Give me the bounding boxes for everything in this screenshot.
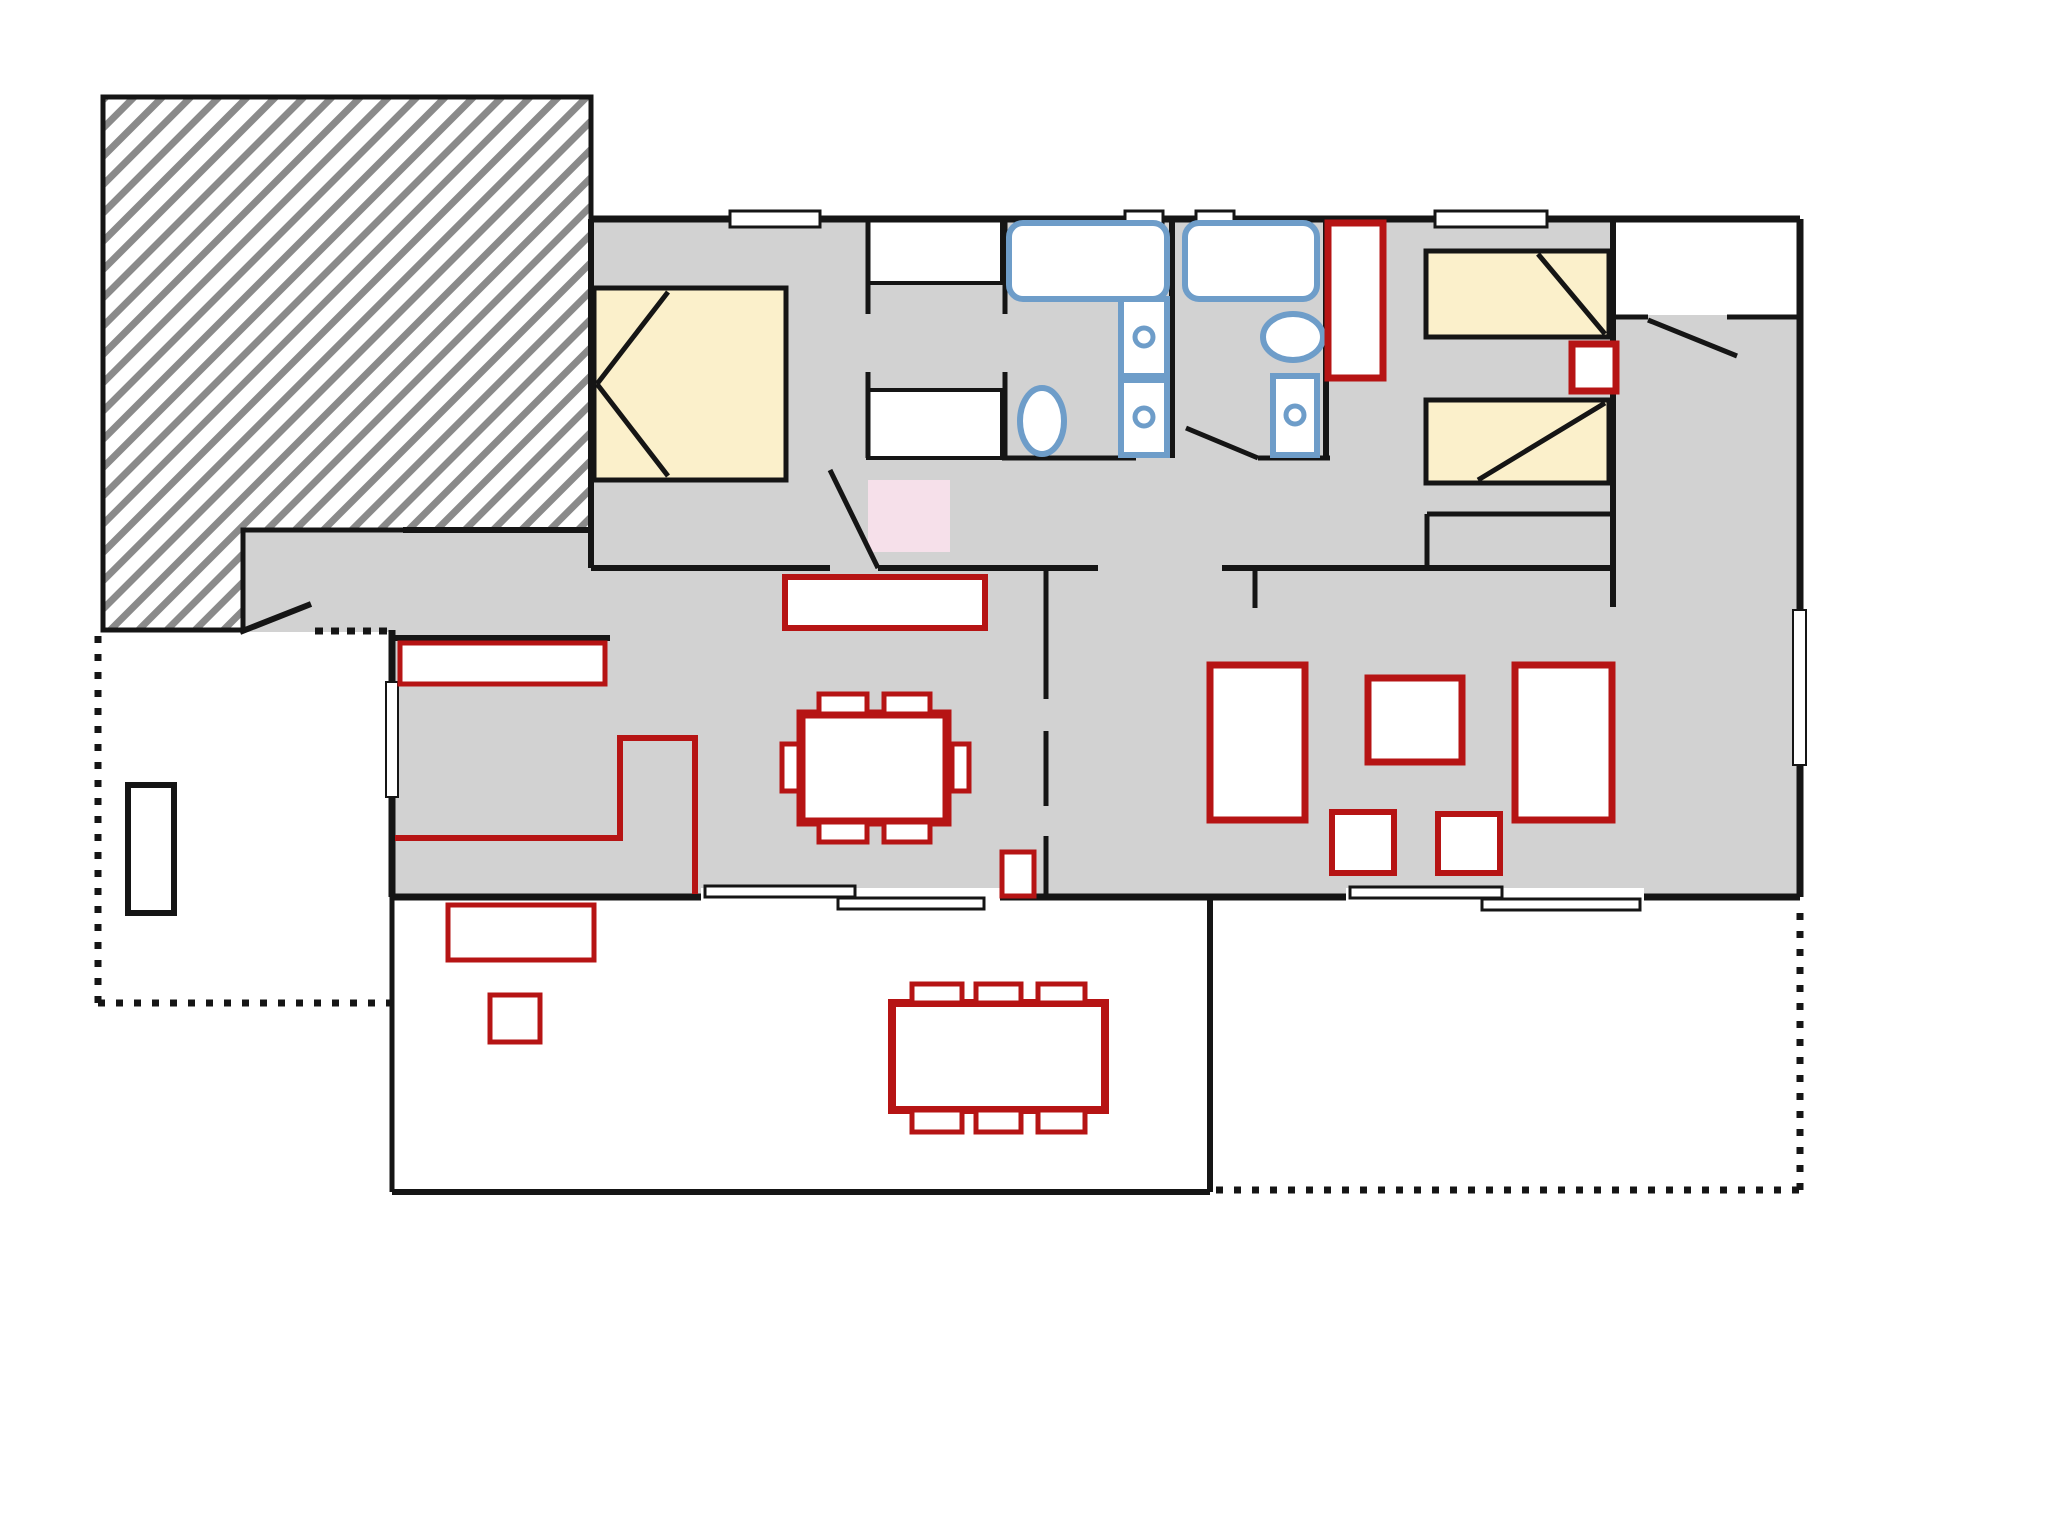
sideboard-kitchen [400,643,605,684]
terrace-dining-table [892,1003,1105,1110]
terrace-chair-top-1 [912,984,962,1003]
floor-entry-vestibule [237,530,591,632]
window-bedroom1 [730,211,820,227]
sliding-door-living-panel-2 [1482,899,1640,910]
cabinet-bath2-red [1328,223,1383,378]
sofa-right [1515,665,1612,820]
nightstand-bedroom2-red [1572,344,1616,391]
sliding-door-living-panel-1 [1350,887,1502,898]
terrace-chair-top-3 [1038,984,1085,1003]
bathtub-2 [1185,223,1317,299]
vanity-1-upper-drain [1135,328,1153,346]
dining-chair-bottom-2 [884,822,930,842]
sofa-left [1210,665,1305,820]
vanity-1-lower-drain [1135,408,1153,426]
chair-by-slider [1002,852,1034,896]
closet-niche-2 [868,390,1002,458]
dining-chair-left [782,744,799,791]
dining-chair-top-1 [819,694,867,714]
window-dining-west [386,682,398,797]
coffee-table [1368,678,1462,762]
closet-top-right [1616,222,1797,315]
bed-double-bedroom1 [594,288,786,480]
terrace-small-table [490,995,540,1042]
terrace-left-planter [128,785,174,913]
sliding-door-dining-panel-2 [838,898,984,909]
terrace-chair-top-2 [976,984,1021,1003]
bed-single-b-bedroom2 [1426,400,1609,483]
terrace-chair-bottom-3 [1038,1110,1085,1132]
shower-2-drain [1286,406,1304,424]
floor-plan-drawing [0,0,2048,1536]
stool-2 [1438,814,1500,873]
bathtub-1 [1009,223,1167,299]
toilet-1 [1020,388,1064,454]
floor-plan-page [0,0,2048,1536]
stool-1 [1332,812,1394,873]
plan-layer [98,97,1806,1192]
bed-single-a-bedroom2 [1426,251,1609,337]
sideboard-dining-north [785,577,985,628]
terrace-chair-bottom-1 [912,1110,962,1132]
dining-chair-right [952,744,969,791]
dining-table [801,714,947,822]
terrace-chair-bottom-2 [976,1110,1021,1132]
rug-hallway [868,480,950,552]
toilet-2 [1263,314,1323,360]
dining-chair-top-2 [884,694,930,714]
window-bedroom2 [1435,211,1547,227]
terrace-sideboard [448,905,594,960]
closet-niche-1 [868,219,1002,283]
window-living-east [1793,610,1806,765]
sliding-door-dining-panel-1 [705,886,855,897]
dining-chair-bottom-1 [819,822,867,842]
